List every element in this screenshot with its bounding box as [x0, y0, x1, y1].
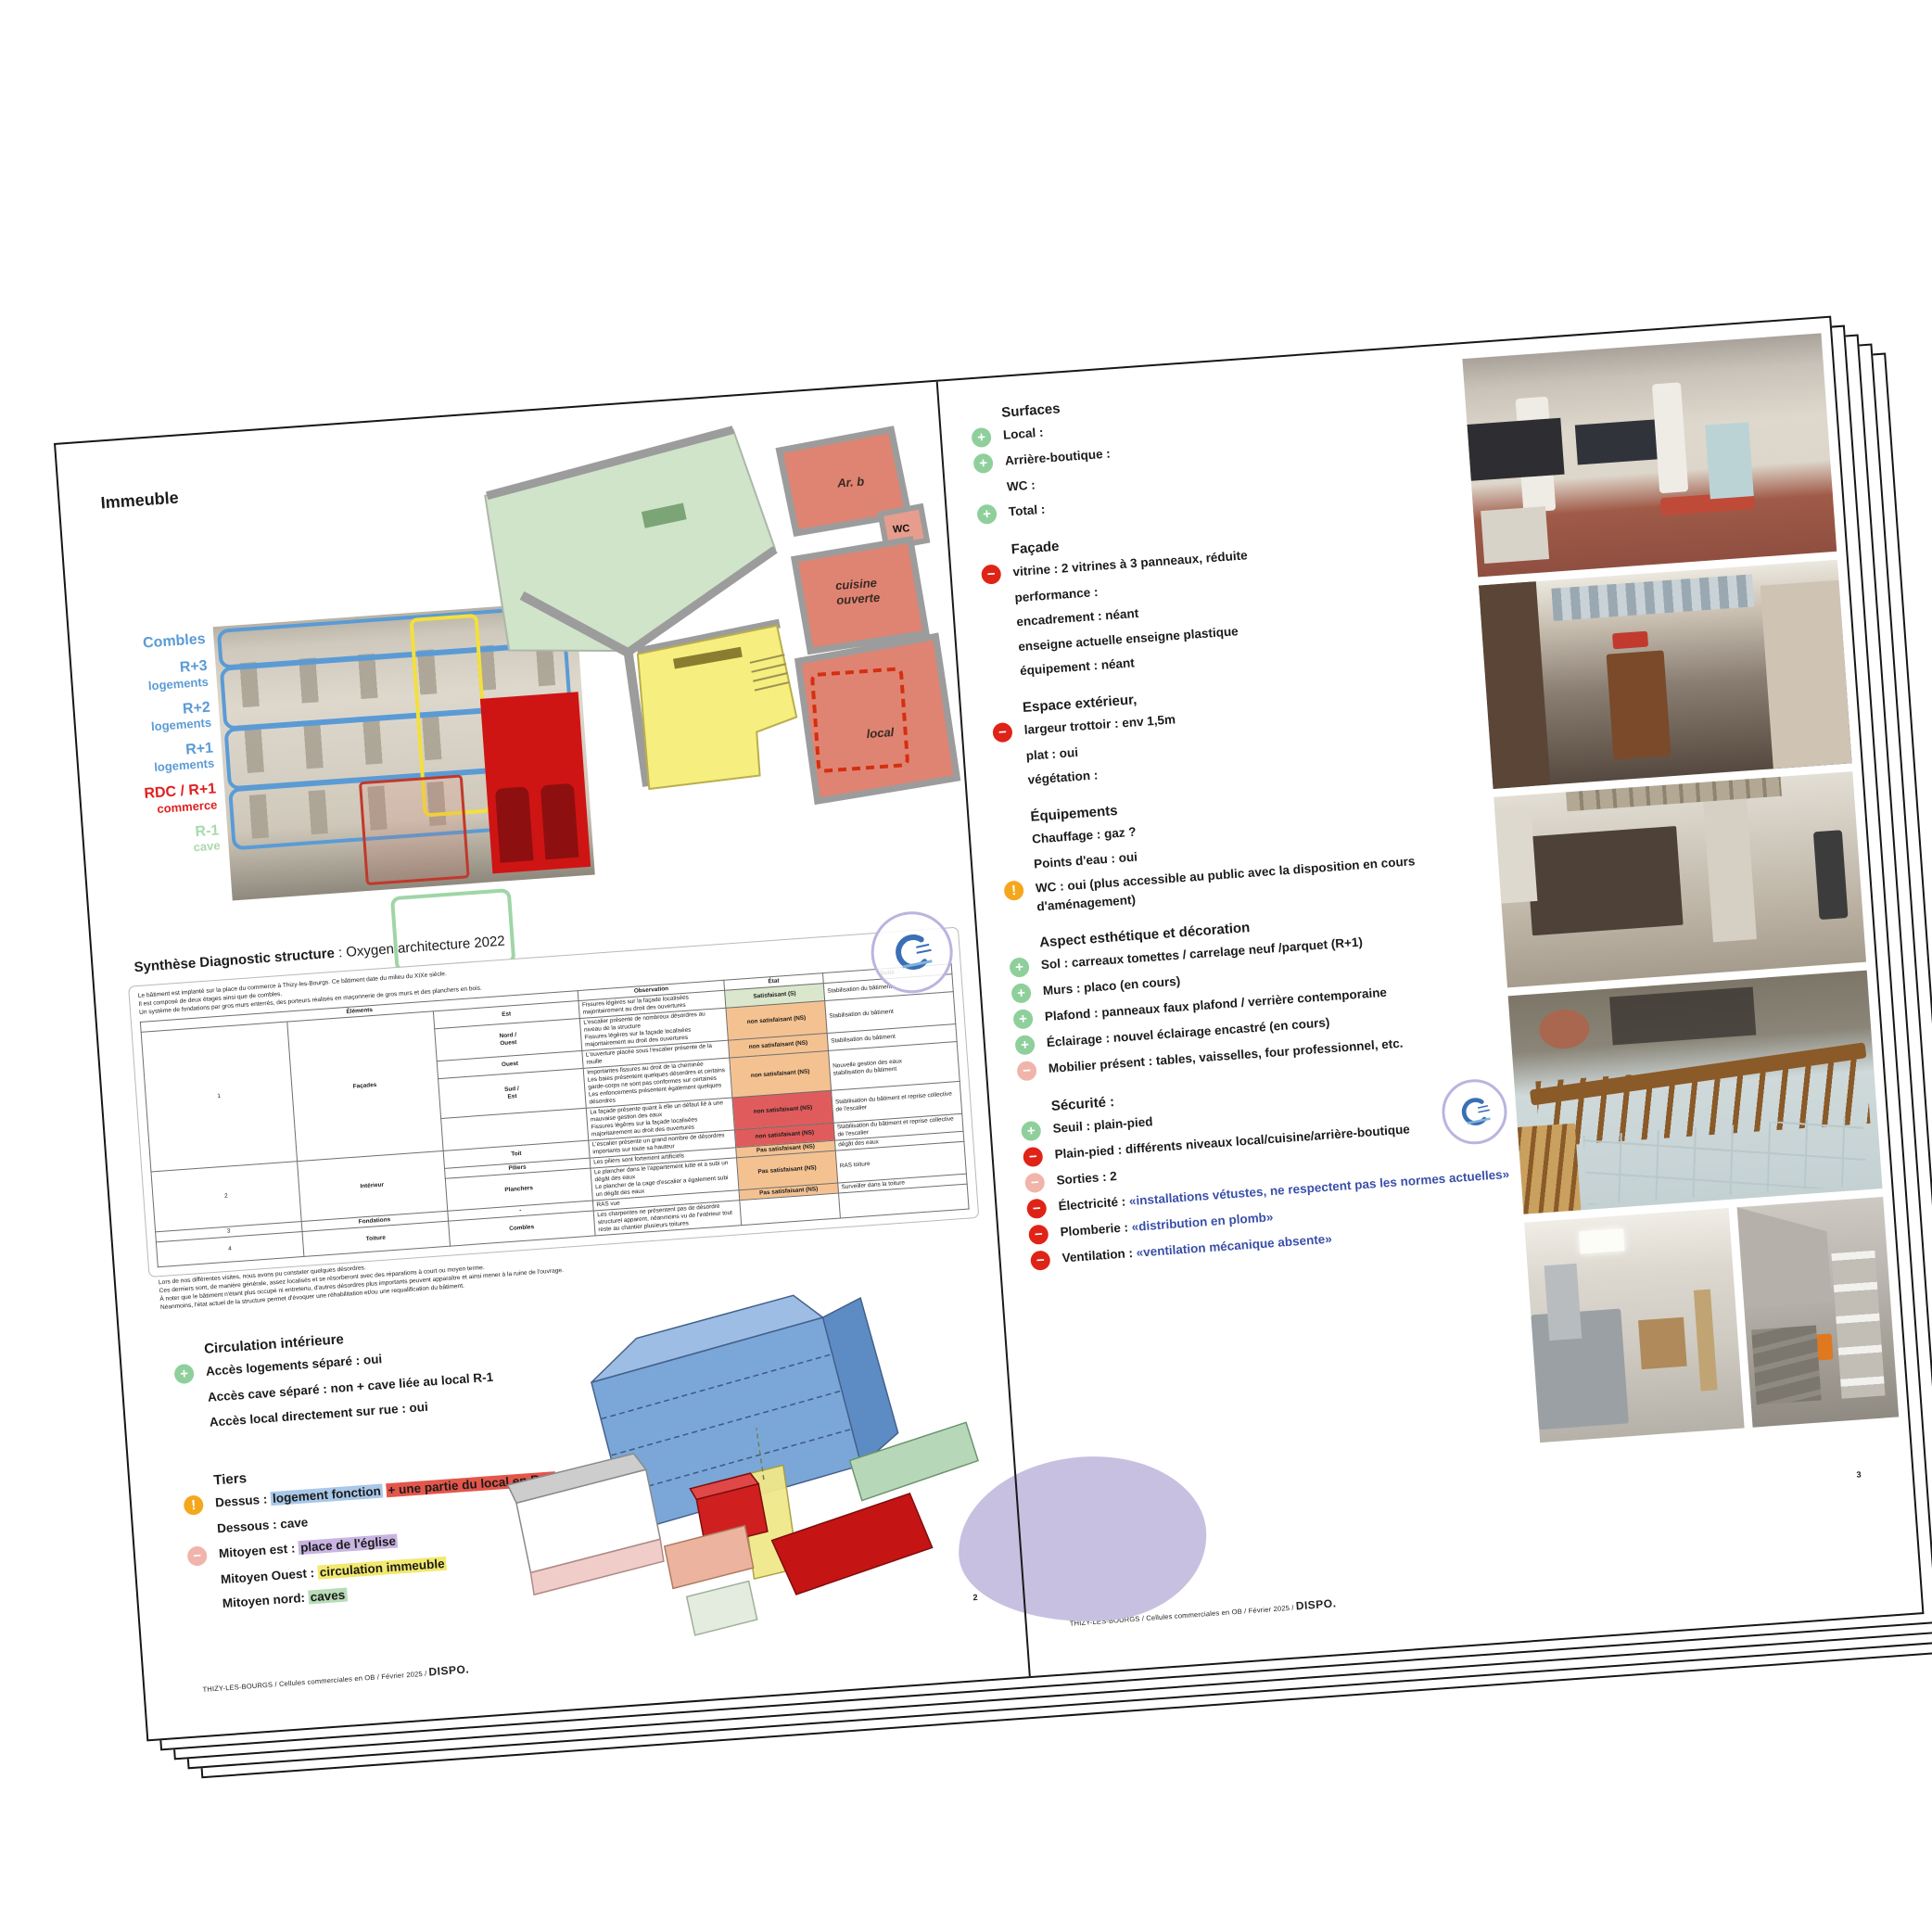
section-aspect: Aspect esthétique et décoration+Sol : ca…: [1008, 903, 1501, 1082]
sloped-ceiling: [1737, 1201, 1832, 1309]
icon-slot: +: [972, 452, 1005, 474]
page-number-right: 3: [1856, 1469, 1862, 1479]
minus-pink-icon: −: [1016, 1061, 1036, 1081]
minus-pink-icon: −: [1024, 1173, 1045, 1193]
brand-logo: DISPO.: [1295, 1596, 1337, 1612]
plus-icon: +: [1021, 1121, 1041, 1141]
icon-slot: +: [1021, 1120, 1053, 1141]
icon-slot: [994, 747, 1025, 749]
minus-red-icon: −: [1030, 1251, 1050, 1271]
plus-icon: +: [972, 453, 993, 474]
icon-slot: [988, 662, 1020, 664]
item-text: Mitoyen nord: caves: [222, 1586, 348, 1613]
round-table: [1538, 1008, 1591, 1050]
diagnostic-box: Le bâtiment est implanté sur la place du…: [128, 927, 979, 1277]
plus-icon: +: [971, 427, 991, 448]
icon-slot: [188, 1570, 220, 1572]
ground-floor-plan: Ar. b WC cuisine ouverte local: [454, 399, 964, 868]
icon-slot: [190, 1595, 222, 1596]
minus-pink-icon: −: [186, 1545, 207, 1566]
icon-slot: −: [1023, 1146, 1055, 1167]
plus-icon: +: [1009, 957, 1029, 977]
item-text: Local :: [1002, 424, 1044, 445]
icon-slot: [983, 589, 1014, 591]
icon-slot: −: [992, 721, 1024, 743]
page-title: Immeuble: [100, 489, 179, 514]
item-text: Dessous : cave: [216, 1513, 308, 1538]
item-text: Points d'eau : oui: [1033, 847, 1138, 873]
item-text: Sorties : 2: [1056, 1167, 1118, 1189]
minus-red-icon: −: [1023, 1147, 1043, 1167]
architect-stamp-logo: [869, 909, 956, 996]
floor-label: R-1cave: [96, 822, 221, 862]
stacked-chairs: [1609, 987, 1757, 1046]
ladder: [1544, 1263, 1582, 1340]
warning-icon: !: [1003, 881, 1023, 901]
white-shelving: [1831, 1251, 1885, 1399]
plus-icon: +: [976, 503, 997, 524]
glass-roof: [1551, 574, 1754, 621]
axonometric-diagram: [447, 1244, 1023, 1681]
item-text: Total :: [1008, 500, 1046, 520]
section-securite: Sécurité :+Seuil : plain-pied−Plain-pied…: [1019, 1066, 1514, 1271]
icon-slot: [177, 1413, 209, 1415]
item-text: Seuil : plain-pied: [1052, 1112, 1153, 1138]
icon-slot: +: [1009, 957, 1041, 978]
plan-label-wc: WC: [893, 523, 910, 535]
facade-floor-labels: ComblesR+3logementsR+2logementsR+1logeme…: [83, 631, 222, 872]
item-text: Chauffage : gaz ?: [1032, 823, 1138, 849]
plus-icon: +: [173, 1364, 194, 1384]
photo-railing-glass-floor: [1508, 971, 1883, 1214]
dark-opening: [1467, 418, 1564, 481]
plan-label-arriere-boutique: Ar. b: [836, 475, 865, 490]
minus-red-icon: −: [981, 564, 1001, 584]
item-text: encadrement : néant: [1016, 604, 1139, 631]
floor-label: R+2logements: [88, 699, 212, 739]
ceiling-joists: [1566, 777, 1783, 811]
page-number-left: 2: [972, 1593, 978, 1602]
icon-slot: [985, 613, 1016, 615]
icon-slot: [175, 1389, 207, 1391]
icon-slot: +: [976, 502, 1009, 524]
icon-slot: !: [184, 1493, 216, 1515]
item-text: performance :: [1014, 582, 1099, 606]
icon-slot: +: [1012, 1008, 1045, 1029]
icon-slot: +: [173, 1363, 206, 1384]
photo-local-columns: [1462, 333, 1837, 577]
plus-icon: +: [1012, 1009, 1033, 1029]
icon-slot: −: [1026, 1198, 1059, 1219]
dark-opening: [1575, 420, 1657, 464]
item-text: Murs : placo (en cours): [1042, 972, 1181, 1000]
red-basin: [1612, 630, 1649, 649]
item-text: équipement : néant: [1020, 655, 1136, 680]
item-text: végétation :: [1027, 767, 1099, 790]
diagnostic-table: Éléments Observation État Suite 1Façades…: [140, 963, 970, 1267]
icon-slot: [1002, 855, 1034, 857]
railing-corner: [1518, 1123, 1582, 1214]
door-panel: [1705, 422, 1753, 499]
section-espace-exterieur: Espace extérieur,−largeur trottoir : env…: [991, 667, 1481, 792]
section-surfaces: Surfaces+Local :+Arrière-boutique :WC :+…: [970, 373, 1461, 525]
dark-panel-wall: [1525, 826, 1683, 935]
item-text: largeur trottoir : env 1,5m: [1023, 710, 1176, 739]
icon-slot: [996, 771, 1027, 773]
icon-slot: −: [981, 563, 1013, 584]
paint-buckets: [1481, 506, 1549, 563]
window-light: [1494, 806, 1537, 904]
item-text: Arrière-boutique :: [1004, 445, 1111, 471]
icon-slot: [1000, 831, 1032, 833]
icon-slot: −: [1030, 1250, 1062, 1271]
item-text: Mitoyen est : place de l'église: [218, 1532, 398, 1562]
brand-logo: DISPO.: [428, 1662, 470, 1678]
minus-red-icon: −: [1028, 1225, 1049, 1245]
icon-slot: −: [1028, 1224, 1061, 1245]
photo-dark-panel-room: [1493, 771, 1866, 987]
icon-slot: +: [1014, 1034, 1047, 1055]
footer-left: THIZY-LES-BOURGS / Cellules commerciales…: [202, 1662, 470, 1695]
photo-column: [1462, 333, 1899, 1451]
dark-beam: [1479, 581, 1551, 789]
page-stack: Immeuble ComblesR+3logementsR+2logements…: [54, 316, 1920, 1738]
ceiling-light: [1579, 1228, 1625, 1253]
floor-label: R+1logements: [91, 741, 215, 781]
stone-wall: [1752, 1326, 1822, 1405]
section-equipements: ÉquipementsChauffage : gaz ?Points d'eau…: [998, 777, 1489, 918]
storefront-outline: [359, 774, 470, 885]
report-spread: Immeuble ComblesR+3logementsR+2logements…: [54, 316, 1924, 1742]
right-page-sections: Surfaces+Local :+Arrière-boutique :WC :+…: [970, 373, 1516, 1290]
floor-label: R+3logements: [84, 658, 209, 698]
wall: [1760, 580, 1851, 769]
plus-icon: +: [1010, 983, 1031, 1003]
icon-slot: −: [1024, 1172, 1057, 1193]
floor-label: RDC / R+1commerce: [94, 782, 218, 821]
photo-cellar-shelves: [1737, 1197, 1899, 1428]
icon-slot: [974, 478, 1006, 480]
icon-slot: +: [1010, 982, 1043, 1003]
item-text: plat : oui: [1025, 744, 1079, 766]
wood-plank: [1694, 1289, 1717, 1391]
icon-slot: −: [186, 1544, 219, 1566]
icon-slot: [185, 1519, 217, 1521]
plus-icon: +: [1014, 1035, 1035, 1055]
item-text: WC :: [1006, 476, 1036, 496]
cardboard-boxes: [1638, 1317, 1686, 1369]
icon-slot: !: [1003, 880, 1036, 901]
photo-kitchen-inox: [1524, 1208, 1745, 1443]
section-facade: Façade−vitrine : 2 vitrines à 3 panneaux…: [979, 509, 1471, 682]
icon-slot: −: [1016, 1060, 1049, 1081]
warning-icon: !: [184, 1494, 204, 1515]
minus-red-icon: −: [1026, 1199, 1047, 1219]
minus-red-icon: −: [992, 722, 1012, 743]
floor-label: Combles: [83, 631, 206, 657]
pillar: [1703, 798, 1756, 942]
photo-backroom-clutter: [1479, 560, 1852, 789]
icon-slot: [986, 638, 1018, 640]
icon-slot: +: [971, 426, 1003, 448]
plan-label-local: local: [866, 725, 895, 741]
wardrobe: [1606, 650, 1671, 760]
person-silhouette: [1813, 830, 1849, 920]
column-shape: [1652, 383, 1688, 494]
